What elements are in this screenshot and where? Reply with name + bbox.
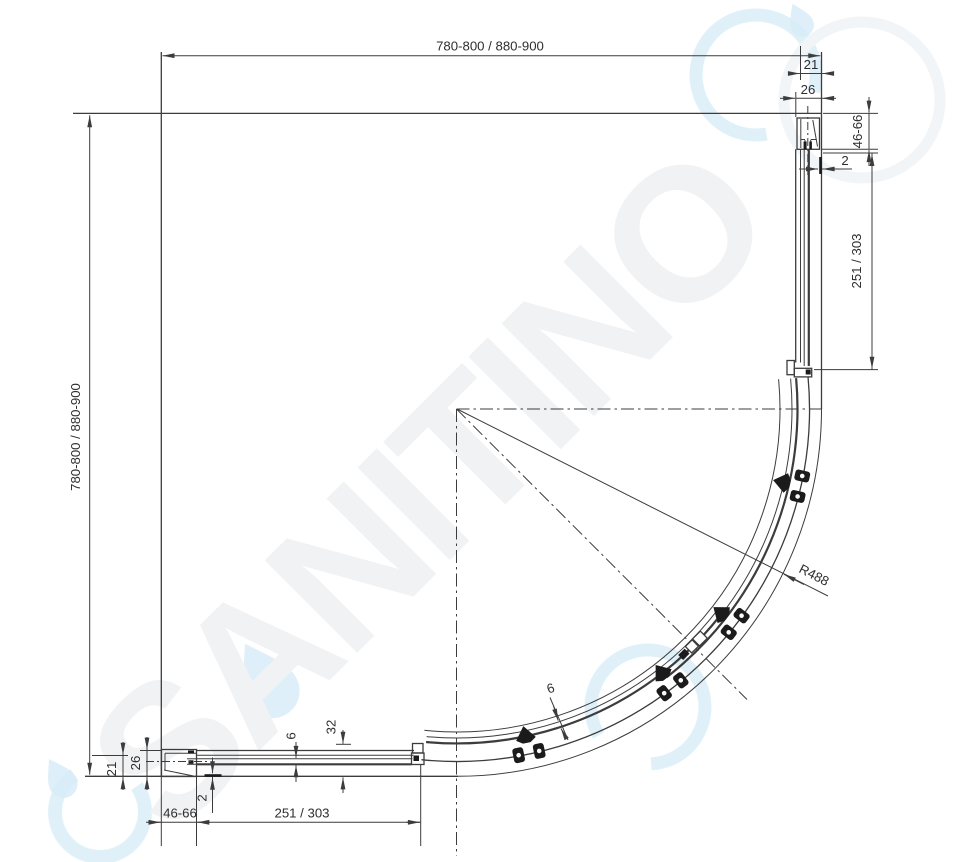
dim-bottom-rail-32: 32 xyxy=(324,720,352,793)
dim-label-26: 26 xyxy=(128,756,143,771)
dim-label-46-66: 46-66 xyxy=(163,806,197,821)
dim-label-6: 6 xyxy=(284,732,299,739)
dim-top-width: 780-800 / 880-900 xyxy=(163,39,821,56)
dim-label-26: 26 xyxy=(801,82,816,97)
dim-label-32: 32 xyxy=(324,720,339,735)
dim-label-46-66: 46-66 xyxy=(850,115,865,149)
dim-label-21: 21 xyxy=(804,57,819,72)
shower-enclosure-plan-drawing: SANITINO 780-800 / 880-900 780-800 / 880… xyxy=(0,0,960,862)
inner-door-glass-inner xyxy=(427,612,717,738)
dim-label-top-width: 780-800 / 880-900 xyxy=(436,39,544,54)
dim-label-251-303: 251 / 303 xyxy=(275,806,330,821)
bottom-panel-end-profile xyxy=(412,744,425,765)
droplet-icon xyxy=(37,752,83,803)
droplet-ring-bottom-center xyxy=(570,629,726,785)
dim-label-radius: R488 xyxy=(797,561,832,589)
drawing-canvas: SANITINO 780-800 / 880-900 780-800 / 880… xyxy=(0,0,960,862)
dim-label-251-303: 251 / 303 xyxy=(849,234,864,289)
dim-left-height: 780-800 / 880-900 xyxy=(68,115,90,775)
dim-label-gap: 2 xyxy=(841,153,848,168)
dim-right-46-66: 46-66 xyxy=(821,97,878,166)
dim-label-21: 21 xyxy=(104,762,119,777)
dim-label-left-height: 780-800 / 880-900 xyxy=(68,383,83,491)
dim-label-6: 6 xyxy=(545,680,557,697)
dim-right-panel-length: 251 / 303 xyxy=(814,153,878,370)
